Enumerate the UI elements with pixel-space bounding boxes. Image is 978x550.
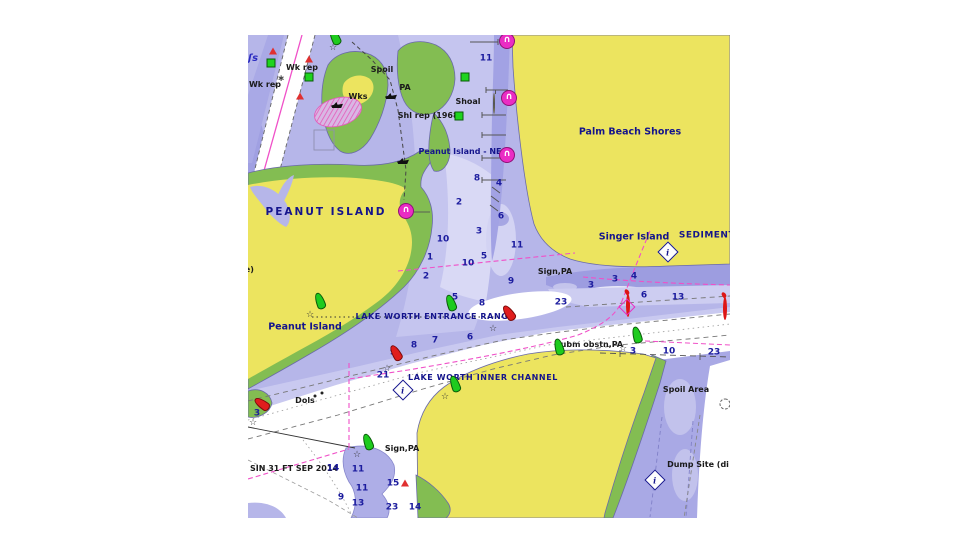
screenshot-page: Wk rep Wk rep Spoil Wks PA Shoal Shl rep… — [0, 0, 978, 550]
nautical-chart: Wk rep Wk rep Spoil Wks PA Shoal Shl rep… — [248, 35, 730, 518]
map-base-layer — [248, 35, 730, 518]
